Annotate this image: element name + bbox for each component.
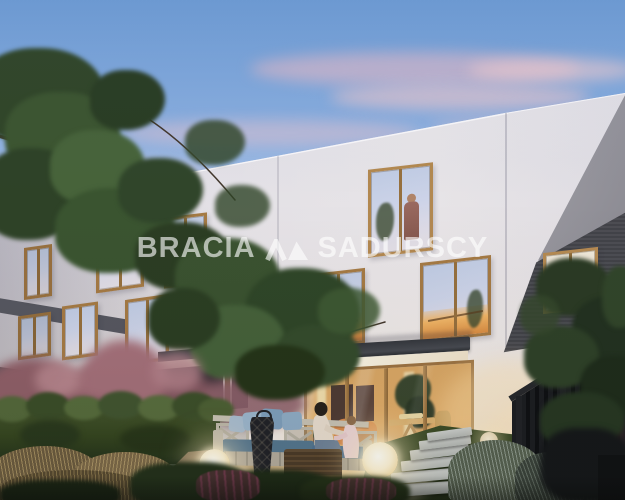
watermark-text-right: SADURSCY bbox=[318, 234, 489, 263]
pink-foliage bbox=[152, 352, 202, 392]
sphere-lamp bbox=[362, 442, 398, 478]
rendered-photo: BRACIA SADURSCY bbox=[0, 0, 625, 500]
cloud bbox=[468, 58, 625, 82]
bottom-vignette bbox=[0, 476, 625, 500]
facade-joint-line bbox=[505, 112, 507, 347]
foliage-blob bbox=[602, 266, 625, 328]
hedge-shadow bbox=[120, 425, 190, 453]
agency-watermark: BRACIA SADURSCY bbox=[0, 234, 625, 263]
watermark-text-left: BRACIA bbox=[137, 234, 256, 263]
hedge-tuft bbox=[98, 391, 144, 419]
throw-pillow bbox=[282, 411, 303, 430]
agency-logo-icon bbox=[265, 239, 309, 262]
